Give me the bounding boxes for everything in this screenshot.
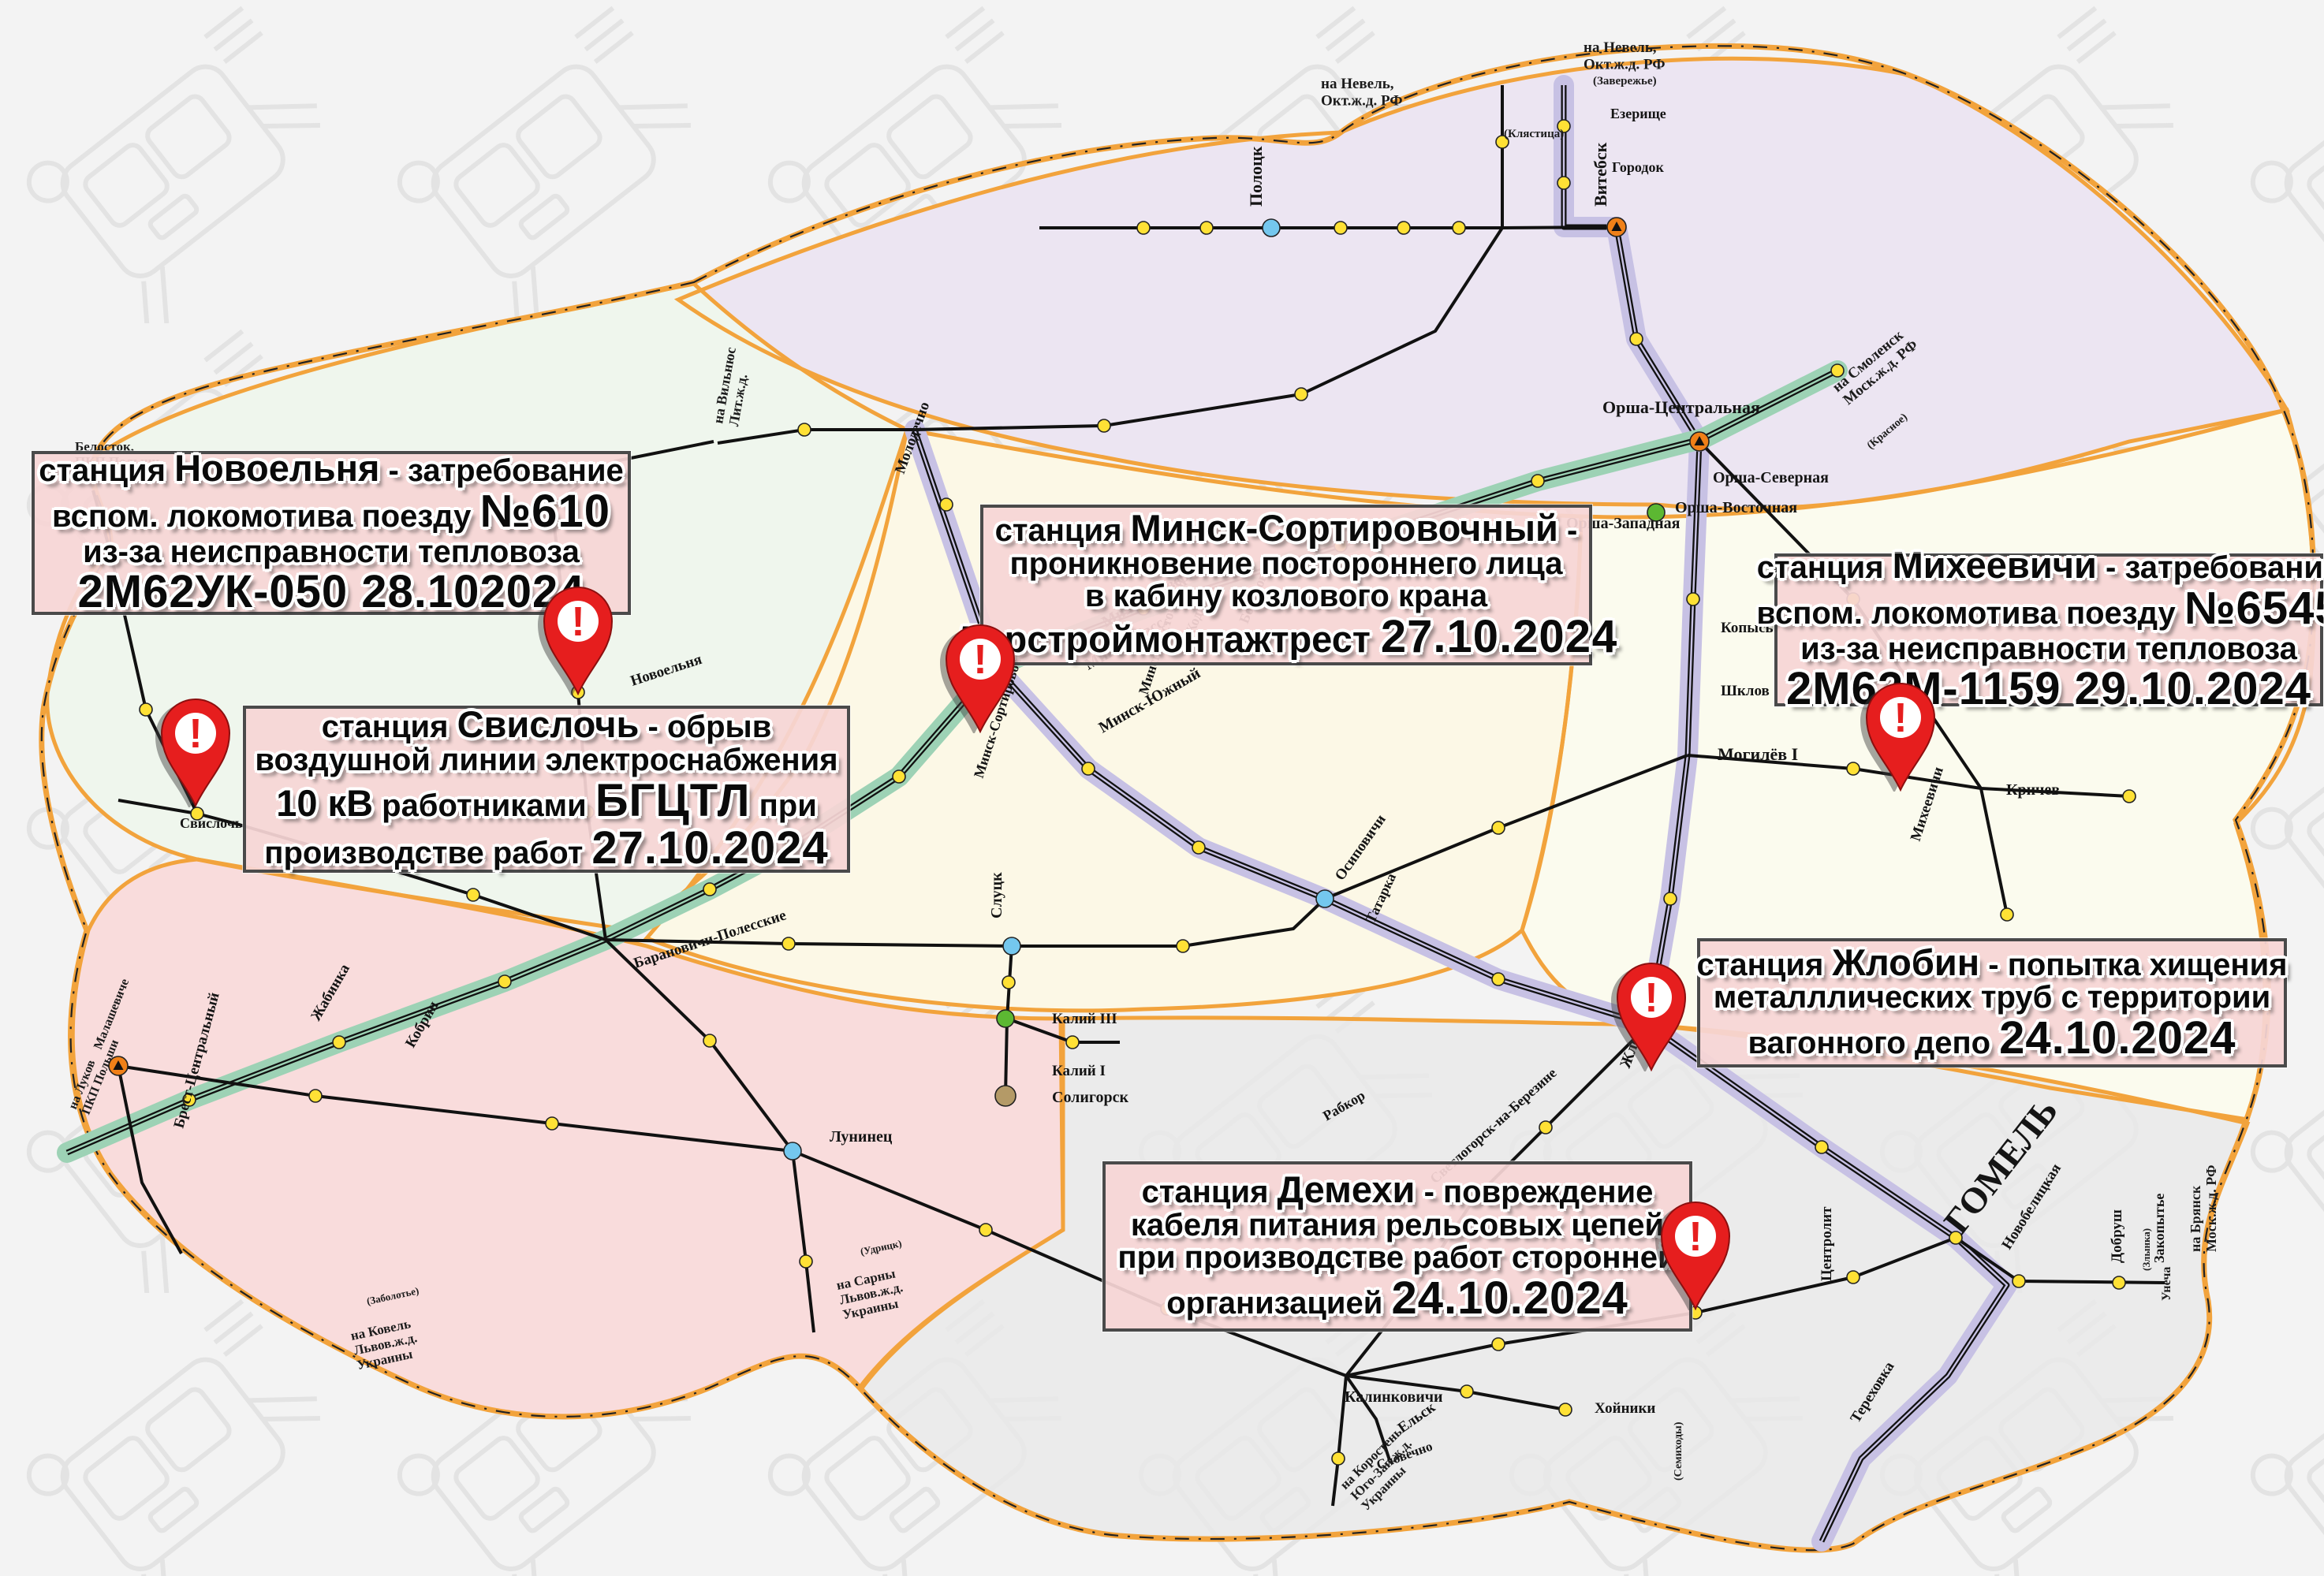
edge-label: (Завережье) bbox=[1593, 75, 1657, 88]
callout-line: производстве работ 27.10.2024 bbox=[264, 825, 828, 872]
station-label: Шклов bbox=[1721, 683, 1770, 699]
station-dot bbox=[1539, 1121, 1552, 1134]
station-label: Калий I bbox=[1052, 1063, 1106, 1079]
incident-callout: станция Минск-Сортировочный -проникновен… bbox=[980, 505, 1592, 665]
callout-text-segment: Свислочь bbox=[457, 703, 640, 745]
station-dot bbox=[1492, 822, 1505, 834]
station-dot bbox=[1492, 1338, 1505, 1351]
station-dot bbox=[1177, 940, 1189, 952]
callout-text-segment: 2М62УК-050 28.102024 bbox=[78, 566, 585, 617]
alert-pin-icon: ! bbox=[152, 689, 239, 807]
station-label: Закопытье bbox=[2151, 1194, 2167, 1263]
callout-text-segment: БГЦТЛ bbox=[595, 775, 751, 826]
callout-line: металллических труб с территории bbox=[1714, 982, 2270, 1015]
callout-text-segment: из-за неисправности тепловоза bbox=[1800, 632, 2297, 666]
callout-text-segment: Жлобин bbox=[1832, 941, 1979, 983]
station-label: Калий III bbox=[1052, 1011, 1117, 1027]
station-label: Свислочь bbox=[180, 815, 243, 831]
callout-text-segment: станция bbox=[1757, 550, 1893, 585]
station-dot bbox=[1316, 890, 1334, 907]
callout-line: вспом. локомотива поезду №6545 bbox=[1756, 585, 2324, 632]
station-dot bbox=[1098, 419, 1110, 432]
callout-text-segment: производстве работ bbox=[264, 836, 591, 870]
station-dot bbox=[1559, 1403, 1572, 1416]
callout-line: проникновение постороннего лица bbox=[1009, 548, 1562, 581]
callout-line: при производстве работ сторонней bbox=[1117, 1242, 1677, 1275]
callout-line: станция Жлобин - попытка хищения bbox=[1697, 944, 2288, 982]
callout-line: станция Демехи - повреждение bbox=[1142, 1171, 1654, 1209]
callout-text-segment: станция bbox=[322, 710, 457, 744]
alert-pin-icon: ! bbox=[1608, 953, 1695, 1071]
station-dot bbox=[1453, 222, 1465, 234]
callout-text-segment: станция bbox=[1142, 1175, 1278, 1209]
station-label: Орша-Центральная bbox=[1602, 397, 1760, 417]
callout-line: 2М62УК-050 28.102024 bbox=[78, 568, 585, 616]
callout-line: Дорстроймонтажтрест 27.10.2024 bbox=[955, 613, 1617, 661]
station-label: Полоцк bbox=[1246, 146, 1266, 207]
callout-line: в кабину козлового крана bbox=[1085, 580, 1487, 613]
callout-text-segment: 27.10.2024 bbox=[591, 822, 828, 874]
callout-text-segment: из-за неисправности тепловоза bbox=[83, 535, 580, 569]
station-label: Добруш bbox=[2109, 1209, 2125, 1263]
incident-pin-Новоельня[interactable]: ! bbox=[535, 577, 621, 695]
station-dot bbox=[1630, 333, 1643, 345]
callout-text-segment: №610 bbox=[480, 486, 610, 537]
station-dot bbox=[1687, 593, 1699, 605]
station-dot bbox=[940, 498, 953, 511]
edge-label: (Злынка) bbox=[2140, 1228, 2152, 1271]
station-label: Слуцк bbox=[988, 872, 1005, 918]
station-label: Могилёв I bbox=[1718, 744, 1798, 764]
callout-text-segment: Минск-Сортировочный bbox=[1131, 507, 1558, 549]
station-dot bbox=[1492, 973, 1505, 985]
incident-callout: станция Демехи - повреждениекабеля питан… bbox=[1102, 1161, 1692, 1332]
station-dot bbox=[784, 1142, 801, 1160]
station-dot bbox=[800, 1255, 812, 1268]
station-dot bbox=[333, 1036, 345, 1049]
callout-text-segment: 24.10.2024 bbox=[1999, 1012, 2236, 1064]
callout-text-segment: в кабину козлового крана bbox=[1085, 579, 1487, 613]
callout-text-segment: - обрыв bbox=[639, 710, 771, 744]
callout-text-segment: кабеля питания рельсовых цепей bbox=[1131, 1208, 1664, 1243]
station-dot bbox=[1460, 1385, 1473, 1398]
callout-text-segment: вагонного депо bbox=[1748, 1026, 2000, 1060]
station-dot bbox=[1137, 222, 1150, 234]
station-dot bbox=[1082, 762, 1095, 775]
station-dot bbox=[140, 703, 152, 716]
callout-text-segment: станция bbox=[1697, 948, 1833, 982]
callout-line: станция Новоельня - затребование bbox=[39, 449, 624, 488]
callout-text-segment: 10 кВ bbox=[276, 782, 373, 824]
station-label: Витебск bbox=[1591, 142, 1610, 207]
station-dot bbox=[1847, 1271, 1860, 1284]
svg-text:!: ! bbox=[188, 711, 202, 757]
callout-text-segment: при bbox=[750, 788, 816, 823]
callout-text-segment: Новоельня bbox=[174, 447, 379, 489]
edge-label: на Невель,Окт.ж.д. РФ bbox=[1584, 39, 1666, 73]
station-dot bbox=[1192, 841, 1205, 854]
alert-pin-icon: ! bbox=[535, 577, 621, 695]
incident-callout: станция Жлобин - попытка хищенияметаллли… bbox=[1697, 938, 2287, 1067]
station-dot bbox=[1332, 1452, 1345, 1465]
station-dot bbox=[1003, 937, 1020, 955]
callout-text-segment: - bbox=[1558, 513, 1577, 548]
station-label: Орша-Восточная bbox=[1675, 499, 1797, 516]
callout-text-segment: воздушной линии электроснабжения bbox=[255, 743, 837, 777]
station-label: Солигорск bbox=[1052, 1089, 1129, 1106]
station-dot bbox=[995, 1086, 1016, 1106]
station-dot bbox=[1295, 388, 1307, 401]
edge-label: (Семиходы) bbox=[1673, 1421, 1684, 1481]
svg-text:!: ! bbox=[571, 599, 584, 645]
callout-line: 10 кВ работниками БГЦТЛ при bbox=[276, 777, 817, 825]
callout-text-segment: - повреждение bbox=[1415, 1175, 1653, 1209]
incident-callout: станция Свислочь - обрыввоздушной линии … bbox=[243, 706, 850, 873]
callout-text-segment: станция bbox=[39, 453, 174, 488]
callout-text-segment: станция bbox=[995, 513, 1131, 548]
callout-line: организацией 24.10.2024 bbox=[1166, 1275, 1628, 1322]
callout-text-segment: проникновение постороннего лица bbox=[1009, 546, 1562, 581]
callout-line: воздушной линии электроснабжения bbox=[255, 744, 837, 777]
callout-text-segment: - затребование bbox=[2097, 550, 2324, 585]
svg-text:!: ! bbox=[1688, 1214, 1702, 1260]
callout-text-segment: - попытка хищения bbox=[1979, 948, 2287, 982]
callout-line: станция Свислочь - обрыв bbox=[322, 706, 772, 744]
station-dot bbox=[782, 937, 795, 950]
edge-label: Унеча bbox=[2160, 1267, 2173, 1301]
station-label: Орша-Северная bbox=[1713, 469, 1829, 486]
station-dot bbox=[309, 1090, 322, 1102]
callout-line: из-за неисправности тепловоза bbox=[83, 536, 580, 569]
incident-pin-Демехи[interactable]: ! bbox=[1652, 1192, 1739, 1310]
station-dot bbox=[2123, 790, 2136, 803]
callout-text-segment: вспом. локомотива поезду bbox=[52, 499, 480, 534]
callout-text-segment: вспом. локомотива поезду bbox=[1756, 596, 2184, 631]
station-dot bbox=[798, 423, 811, 436]
svg-text:!: ! bbox=[973, 637, 987, 683]
callout-line: станция Минск-Сортировочный - bbox=[995, 509, 1578, 548]
alert-pin-icon: ! bbox=[937, 615, 1024, 733]
callout-text-segment: при производстве работ сторонней bbox=[1117, 1240, 1677, 1275]
station-dot bbox=[1397, 222, 1410, 234]
station-dot bbox=[2001, 908, 2013, 921]
alert-pin-icon: ! bbox=[1652, 1192, 1739, 1310]
station-dot bbox=[2013, 1275, 2025, 1287]
callout-line: вспом. локомотива поезду №610 bbox=[52, 488, 610, 535]
callout-text-segment: - затребование bbox=[379, 453, 623, 488]
callout-line: станция Михеевичи - затребование bbox=[1757, 546, 2324, 585]
station-dot bbox=[997, 1010, 1014, 1027]
station-dot bbox=[498, 975, 511, 988]
incident-pin-Минск-Сортировочный[interactable]: ! bbox=[937, 615, 1024, 733]
callout-text-segment: Михеевичи bbox=[1893, 544, 2097, 586]
edge-label: на Невель,Окт.ж.д. РФ bbox=[1321, 76, 1403, 109]
station-label: Езерище bbox=[1610, 106, 1666, 121]
alert-pin-icon: ! bbox=[1857, 673, 1944, 792]
station-label: Городок bbox=[1612, 159, 1664, 175]
station-label: Центролит bbox=[1819, 1206, 1835, 1281]
incident-pin-Жлобин[interactable]: ! bbox=[1608, 953, 1695, 1071]
station-dot bbox=[1557, 177, 1570, 189]
station-dot bbox=[1263, 219, 1280, 237]
station-label: Хойники bbox=[1595, 1400, 1655, 1417]
station-dot bbox=[893, 770, 905, 783]
callout-line: кабеля питания рельсовых цепей bbox=[1131, 1209, 1664, 1243]
svg-text:!: ! bbox=[1893, 695, 1907, 741]
station-dot bbox=[467, 889, 479, 901]
svg-text:!: ! bbox=[1644, 975, 1658, 1021]
callout-text-segment: 24.10.2024 bbox=[1391, 1272, 1628, 1324]
station-label: Лунинец bbox=[830, 1128, 893, 1146]
station-dot bbox=[1200, 222, 1213, 234]
station-dot bbox=[1531, 475, 1544, 487]
edge-label: (Клястица) bbox=[1504, 128, 1564, 140]
station-dot bbox=[703, 1034, 716, 1047]
incident-pin-Свислочь[interactable]: ! bbox=[152, 689, 239, 807]
callout-text-segment: работниками bbox=[373, 788, 595, 823]
station-dot bbox=[546, 1117, 558, 1130]
station-dot bbox=[979, 1224, 992, 1236]
station-label: Кричев bbox=[2006, 781, 2060, 799]
callout-line: из-за неисправности тепловоза bbox=[1800, 633, 2297, 666]
callout-line: вагонного депо 24.10.2024 bbox=[1748, 1015, 2236, 1062]
station-dot bbox=[1664, 892, 1677, 905]
callout-text-segment: 27.10.2024 bbox=[1381, 611, 1617, 662]
incident-pin-Михеевичи[interactable]: ! bbox=[1857, 673, 1944, 792]
railway-line bbox=[1039, 227, 1617, 228]
railway-incident-map: ВитебскПолоцкЕзерищеГородокОрша-Централь… bbox=[0, 0, 2324, 1576]
station-dot bbox=[2113, 1276, 2125, 1289]
callout-text-segment: организацией bbox=[1166, 1286, 1391, 1321]
callout-text-segment: №6545 bbox=[2184, 583, 2324, 634]
station-dot bbox=[703, 883, 716, 896]
station-dot bbox=[1815, 1141, 1828, 1153]
callout-text-segment: металллических труб с территории bbox=[1714, 980, 2270, 1015]
station-dot bbox=[1334, 222, 1347, 234]
station-dot bbox=[1002, 976, 1015, 989]
callout-text-segment: Демехи bbox=[1278, 1168, 1416, 1210]
station-dot bbox=[1066, 1036, 1079, 1049]
